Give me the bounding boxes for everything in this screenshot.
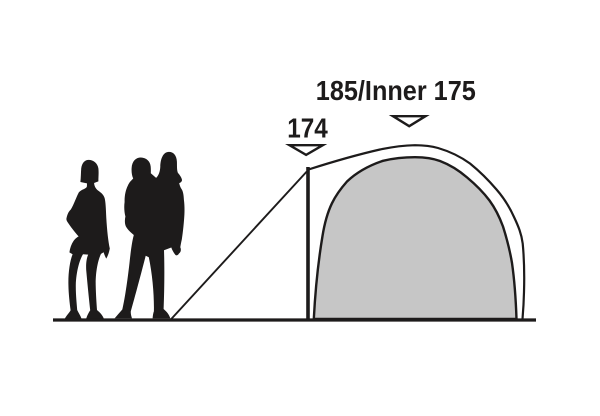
svg-text:174: 174 [287, 113, 328, 144]
svg-text:185/Inner 175: 185/Inner 175 [316, 75, 476, 106]
